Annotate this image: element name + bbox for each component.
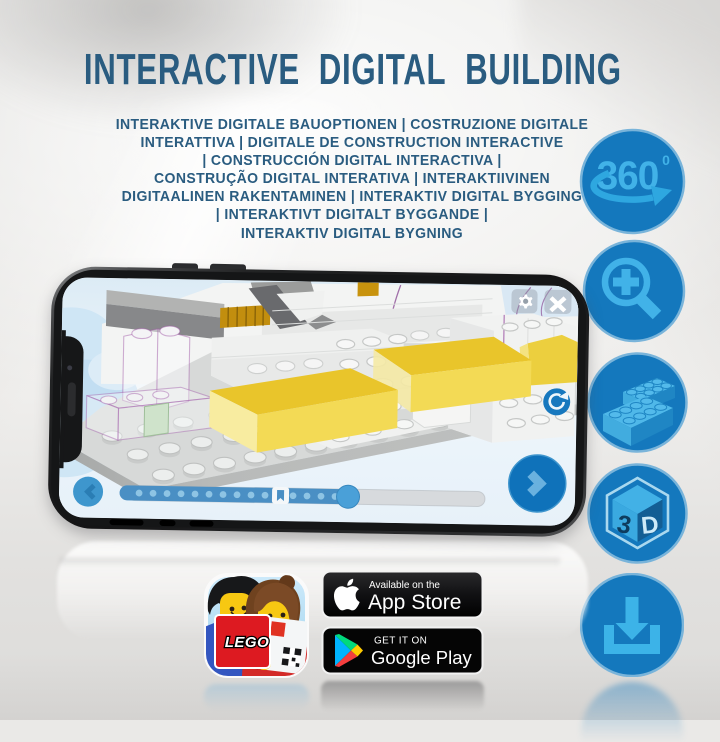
svg-text:App Store: App Store	[368, 591, 461, 614]
svg-text:GET IT ON: GET IT ON	[374, 636, 427, 647]
svg-text:Google Play: Google Play	[371, 647, 473, 668]
svg-text:LEGO: LEGO	[225, 634, 270, 651]
svg-text:D: D	[640, 511, 660, 540]
svg-text:Available on the: Available on the	[369, 580, 440, 591]
svg-text:0: 0	[662, 152, 670, 168]
